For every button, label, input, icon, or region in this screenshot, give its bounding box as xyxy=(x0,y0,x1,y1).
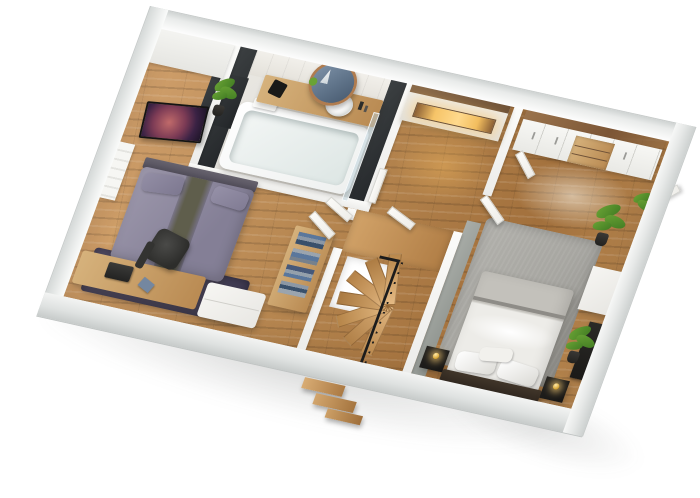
tv-nebula xyxy=(139,101,210,143)
scene-3d-floor-plan xyxy=(0,0,700,498)
bed-right-cushion xyxy=(478,347,514,363)
